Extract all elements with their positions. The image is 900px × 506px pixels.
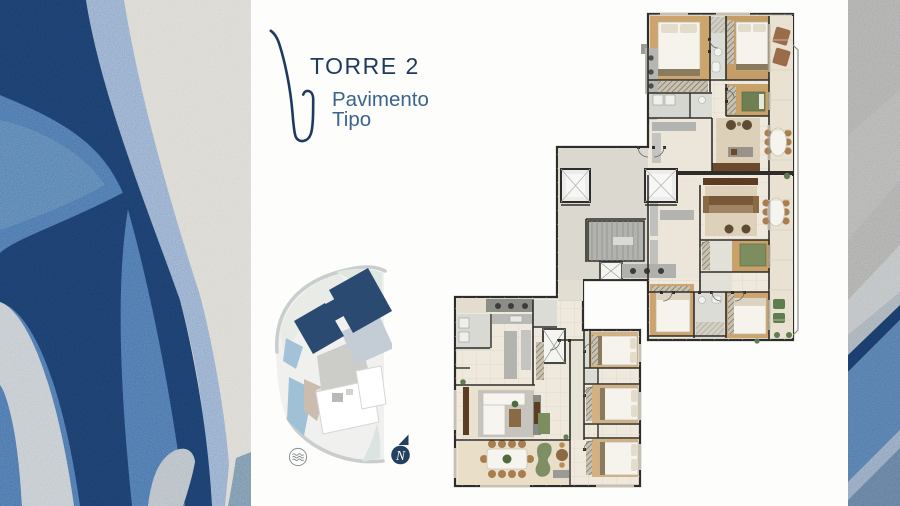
svg-text:N: N: [395, 448, 406, 463]
